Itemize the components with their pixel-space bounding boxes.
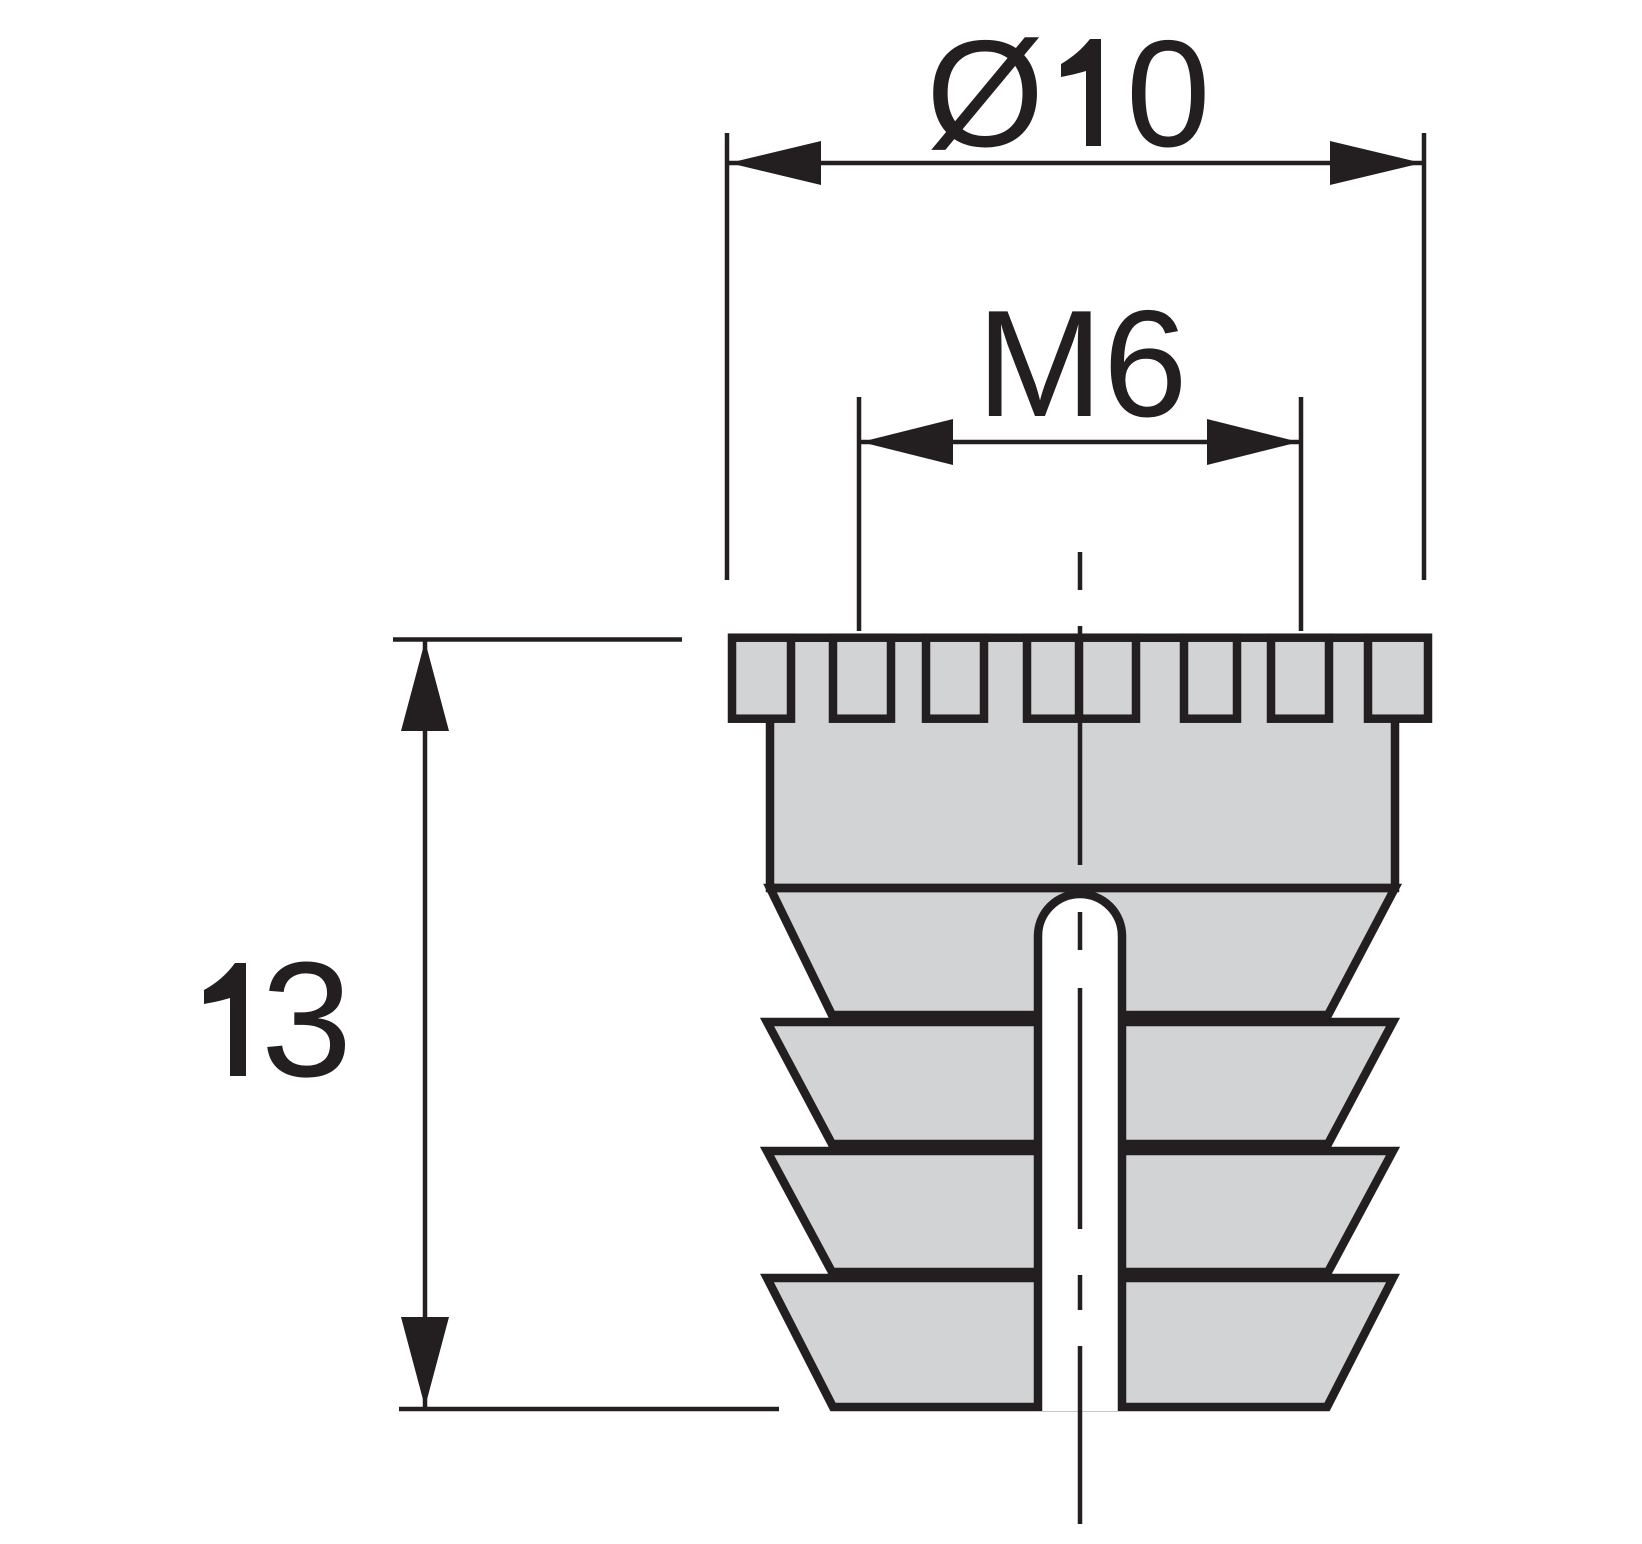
svg-text:Ø: Ø	[926, 9, 1044, 179]
svg-text:M6: M6	[976, 279, 1187, 449]
svg-text:0: 0	[1126, 9, 1211, 179]
svg-text:3: 3	[261, 928, 352, 1111]
